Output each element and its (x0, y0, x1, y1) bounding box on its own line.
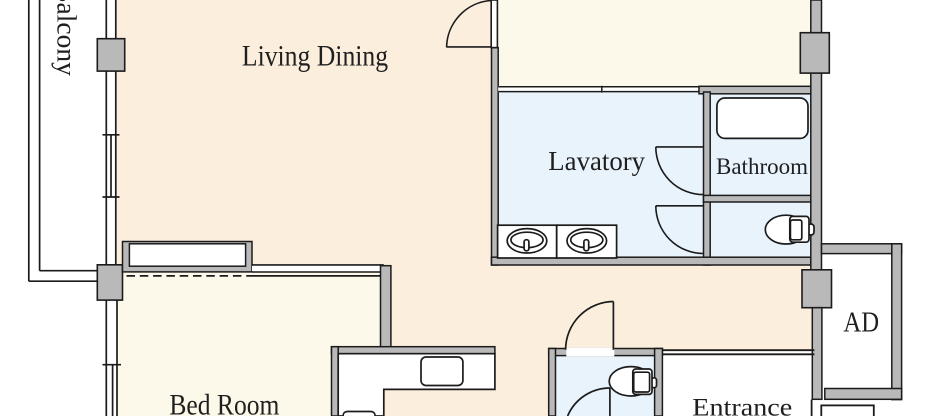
svg-text:Bathroom: Bathroom (716, 154, 808, 179)
svg-text:Bed Room: Bed Room (169, 389, 279, 416)
svg-text:Living Dining: Living Dining (242, 39, 388, 72)
svg-text:Lavatory: Lavatory (548, 146, 645, 176)
svg-text:Balcony: Balcony (52, 0, 83, 76)
svg-text:Entrance: Entrance (692, 395, 792, 416)
svg-text:AD: AD (843, 307, 879, 339)
